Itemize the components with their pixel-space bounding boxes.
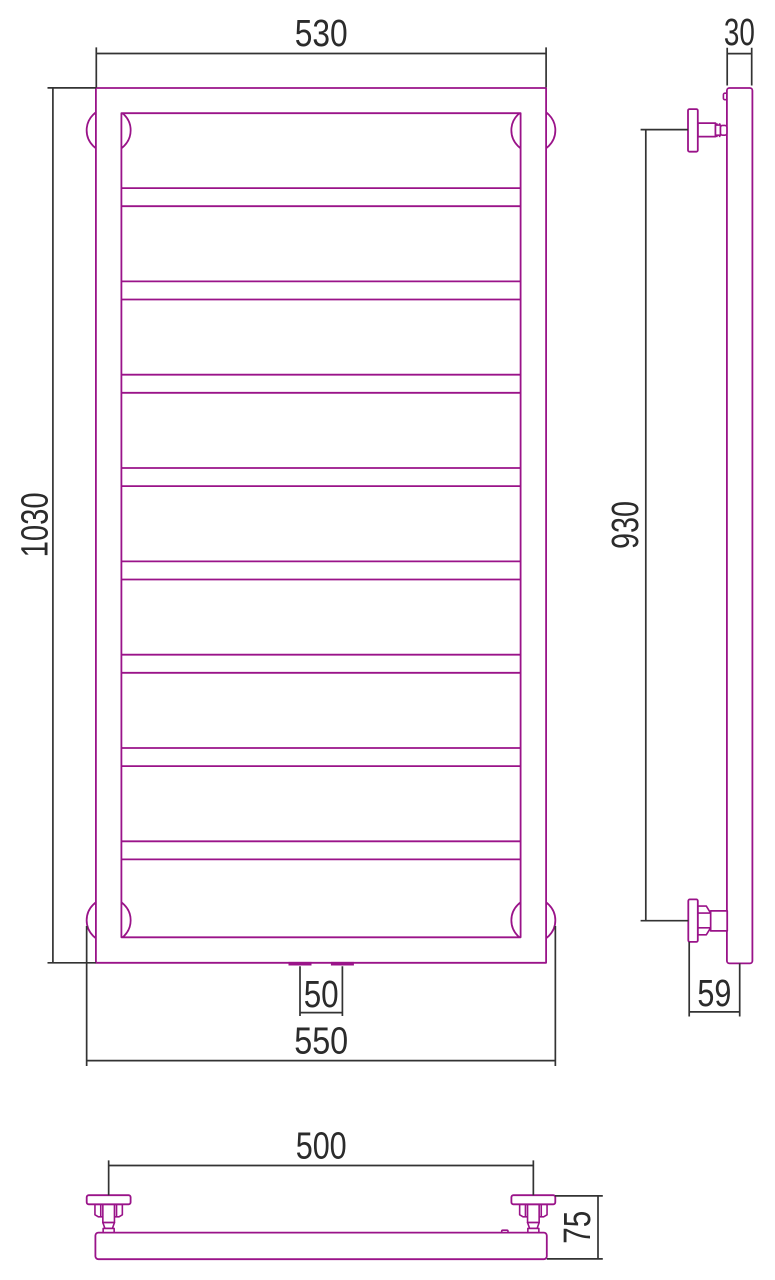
svg-text:50: 50 bbox=[304, 974, 339, 1016]
svg-text:530: 530 bbox=[295, 13, 348, 55]
svg-text:1030: 1030 bbox=[14, 492, 56, 557]
svg-text:930: 930 bbox=[605, 501, 647, 549]
svg-text:59: 59 bbox=[697, 973, 731, 1015]
svg-text:550: 550 bbox=[294, 1021, 348, 1063]
svg-text:500: 500 bbox=[296, 1126, 347, 1168]
svg-text:75: 75 bbox=[557, 1211, 599, 1244]
svg-text:30: 30 bbox=[724, 12, 755, 54]
